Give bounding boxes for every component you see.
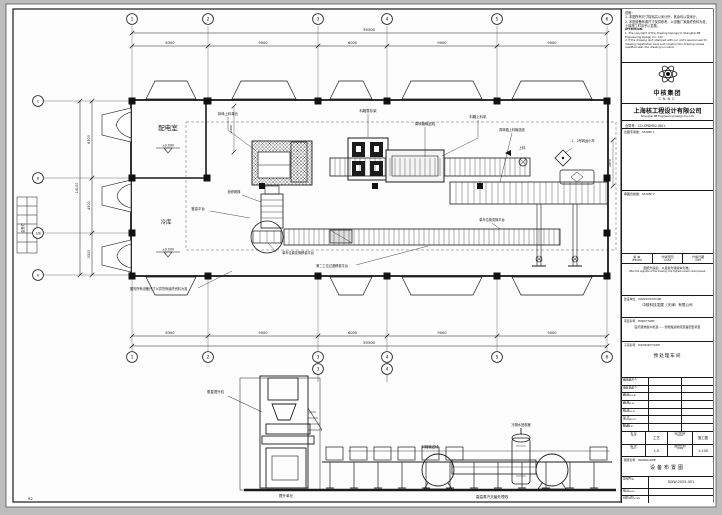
staff-date-cell — [682, 378, 713, 385]
subproject-value: 预处理车间 — [622, 347, 713, 359]
room-label-cold: 冷库 — [160, 218, 172, 226]
column — [204, 98, 211, 105]
staff-role-label: 设 计DESIGNED BY — [622, 416, 649, 423]
staff-date-cell — [682, 401, 713, 408]
scale-value: 1:100 — [698, 449, 708, 453]
notes-box: 说明： 1. 本图所有尺寸除标高以米计外，其余均以毫米计。 2. 本图设备布置尺… — [622, 9, 713, 63]
equipment-label: 单车位置变换平台 — [479, 217, 505, 222]
cad-drawing-canvas: 3930063009000600090009000123456630090006… — [0, 0, 722, 511]
entrance-door — [102, 108, 131, 272]
atom-logo-icon — [657, 64, 679, 84]
stamp1-label: 出图专用章：STAMP 1 — [624, 130, 655, 134]
subproject-row: 子项名称：SUB-PROJECT NAME 预处理车间 — [622, 342, 713, 378]
staff-row: 审 核AUDITED BY — [622, 401, 713, 409]
notes-en-line: 2. If the drawing isn't stamped with our… — [625, 39, 710, 50]
grid-bubble-label: 3 — [317, 17, 320, 23]
equipment-label: 上料 — [519, 145, 526, 150]
project-name-value: 医疗废物集中处置——智能搬运物流装备配套项目 — [622, 323, 713, 329]
staff-date-cell — [682, 393, 713, 400]
logo-text-en: CNNC — [622, 97, 713, 101]
version-table: 版 本VERSION升版原因CAUSE升版日期DATE 图纸升版后，以最新升级版… — [622, 254, 713, 296]
staff-signature-cell — [649, 416, 682, 423]
stamp2-label: 审图合格章：STAMP 2 — [624, 192, 655, 196]
project-number-value: SJXW-2025-001 — [649, 477, 713, 488]
corner-mark: R2 — [28, 497, 33, 501]
equipment-label: 单车位置变换移载平台 — [282, 250, 314, 255]
grid-bubble-label: 6 — [606, 17, 609, 23]
drawing-name-value: 设备布置图 — [622, 462, 713, 471]
staff-table: 项目负责人PRJ. MGR 专业负责人SPEC. MGR 审 定APPROVED… — [622, 378, 713, 432]
column — [204, 175, 211, 182]
project-number-row: 项目编号PROJECT No. SJXW-2025-001 — [622, 477, 713, 489]
staff-signature-cell — [649, 393, 682, 400]
grid-bubble-label: 4 — [386, 355, 389, 361]
dim-span-bottom: 9000 — [258, 331, 268, 335]
level-value: ±0.000 — [162, 144, 174, 148]
staff-role-label: 项目负责人PRJ. MGR — [622, 378, 649, 385]
staff-row: 制 图DRAWN BY — [622, 424, 713, 432]
version-header-cell: 版 本VERSION — [622, 254, 653, 263]
dim-span-left: 6300 — [87, 135, 91, 144]
construction-unit-row: 建设单位：CONSTRUCTION UNIT 中核科技发展（天津）有限公司 — [622, 296, 713, 318]
equipment-label: 料箱上料机 — [470, 114, 488, 119]
equipment-label: 拆垛上料单元 — [218, 111, 239, 116]
grid-bubble-label: 1 — [131, 17, 134, 23]
column — [604, 230, 611, 237]
profession-value: 工艺 — [653, 436, 660, 440]
staff-role-label: 制 图DRAWN BY — [622, 424, 649, 432]
dim-span-left: 3300 — [87, 250, 91, 259]
staff-signature-cell — [649, 401, 682, 408]
column — [259, 183, 265, 189]
elevation-label: 冷凝水回收器 — [511, 422, 531, 427]
elevation-label: 提升单元 — [279, 493, 294, 498]
grid-bubble-label: 5 — [496, 17, 499, 23]
staff-row: 专业负责人SPEC. MGR — [622, 386, 713, 394]
project-name-row: 项目名称：PROJECT NAME 医疗废物集中处置——智能搬运物流装备配套项目 — [622, 318, 713, 342]
staff-role-label: 审 核AUDITED BY — [622, 401, 649, 408]
staff-signature-cell — [649, 386, 682, 393]
drawing-number-value — [649, 489, 713, 495]
title-block: 说明： 1. 本图所有尺寸除标高以米计外，其余均以毫米计。 2. 本图设备布置尺… — [621, 9, 713, 503]
logo-text-cn: 中核集团 — [622, 88, 713, 97]
staff-role-label: 校 对CHECKED BY — [622, 409, 649, 416]
dim-total-bottom: 39300 — [363, 340, 376, 345]
grid-bubble-label: 4 — [386, 367, 389, 373]
grid-bubble-label: 5 — [496, 355, 499, 361]
dim-span-top: 6000 — [348, 41, 358, 45]
drawing-sheet: 3930063009000600090009000123456630090006… — [0, 0, 722, 511]
equipment-label: 检修爬梯 — [228, 189, 242, 194]
dim-total-left: 14100 — [75, 183, 79, 194]
staff-row: 设 计DESIGNED BY — [622, 416, 713, 424]
staff-signature-cell — [649, 378, 682, 385]
dim-inner: 2600 — [229, 125, 233, 133]
elevation-label: 垂直提升机 — [207, 389, 225, 394]
level-value: ±0.000 — [162, 248, 174, 252]
drawing-name-row: 图纸名称：DRAWING NAME 设备布置图 — [622, 457, 713, 477]
drawing-number-row: 图 号DRAWING No. — [622, 489, 713, 496]
column — [372, 183, 378, 189]
dim-span-bottom: 6000 — [348, 331, 358, 335]
elevation-label: 料箱输送线 — [422, 444, 440, 449]
grid-bubble-label: 1 — [131, 355, 134, 361]
grid-bubble-label: 1/B — [35, 232, 40, 236]
company-name-cn: 上海核工程设计有限公司 — [622, 103, 713, 115]
dim-span-bottom: 9000 — [437, 331, 447, 335]
grid-bubble-label: B — [37, 177, 39, 181]
equipment-label: 周转箱输送线 — [415, 121, 436, 126]
notes-cn-line: 1. 本图所有尺寸除标高以米计外，其余均以毫米计。 — [625, 15, 710, 19]
elevation-label: 高温蒸汽灭菌处理线 — [476, 494, 509, 499]
staff-date-cell — [682, 416, 713, 423]
equipment-label: 周转箱上料输送线 — [499, 127, 525, 132]
grid-bubble-label: 3 — [317, 355, 320, 361]
dim-span-top: 9000 — [547, 41, 557, 45]
dim-span-top: 9000 — [258, 41, 268, 45]
stamp-box-2: 审图合格章：STAMP 2 — [622, 191, 713, 254]
staff-role-label: 审 定APPROVED BY — [622, 393, 649, 400]
publication-date-value — [649, 496, 713, 503]
stage-value: 施工图 — [698, 436, 708, 440]
column — [604, 175, 611, 182]
dim-span-top: 6300 — [165, 41, 175, 45]
staff-role-label: 专业负责人SPEC. MGR — [622, 386, 649, 393]
staff-row: 校 对CHECKED BY — [622, 409, 713, 417]
staff-date-cell — [682, 386, 713, 393]
equipment-label: 第二工位过渡移载平台 — [316, 263, 348, 268]
dim-span-top: 9000 — [437, 41, 447, 45]
staff-signature-cell — [649, 409, 682, 416]
version-header-cell: 升版日期DATE — [683, 254, 713, 263]
grid-bubble-label: 2 — [207, 355, 210, 361]
grid-bubble-label: 4 — [386, 17, 389, 23]
dim-inner: 2850 — [608, 159, 612, 167]
staff-signature-cell — [649, 424, 682, 432]
company-name-en: Shanghai NE Engineering Design Co.,Ltd. — [622, 115, 713, 118]
dim-span-bottom: 9000 — [547, 331, 557, 335]
construction-unit-value: 中核科技发展（天津）有限公司 — [622, 301, 713, 308]
dim-span-left: 4500 — [87, 201, 91, 210]
revision-value: 1.0 — [654, 449, 659, 453]
grid-bubble-label: 6 — [606, 355, 609, 361]
side-table-label: 会签栏 — [20, 222, 25, 232]
equipment-label: 1、2号转运小车 — [571, 138, 594, 143]
publication-date-row: 出版日期PUBLICATION DATE — [622, 496, 713, 503]
company-block: 中核集团 CNNC 上海核工程设计有限公司 Shanghai NE Engine… — [622, 63, 713, 129]
stamp-box-1: 出图专用章：STAMP 1 — [622, 129, 713, 191]
room-label-power: 配电室 — [158, 123, 178, 132]
plan-note: 图内所有设备尺寸以供货商最终资料为准 — [130, 286, 188, 291]
dim-total-top: 39300 — [363, 27, 376, 32]
meta-table: 专 业PROF. 工艺 设计阶段STAGE 施工图 版 次REV. 1.0 图纸… — [622, 432, 713, 457]
staff-row: 审 定APPROVED BY — [622, 393, 713, 401]
equipment-label: 登高平台 — [191, 206, 205, 211]
version-header-row: 版 本VERSION升版原因CAUSE升版日期DATE — [622, 254, 713, 264]
equipment-label: 料箱暂存架 — [360, 108, 378, 113]
staff-date-cell — [682, 424, 713, 432]
version-header-cell: 升版原因CAUSE — [653, 254, 684, 263]
grid-bubble-label: 2 — [207, 17, 210, 23]
grid-bubble-label: 3 — [317, 367, 320, 373]
contract-number: 合同号：CO-SPDM02-W01 — [622, 120, 713, 128]
version-note: 图纸升版后，以最新升级版本为准。 After the upgrade of th… — [622, 264, 713, 275]
dim-span-bottom: 6300 — [165, 331, 175, 335]
staff-date-cell — [682, 409, 713, 416]
